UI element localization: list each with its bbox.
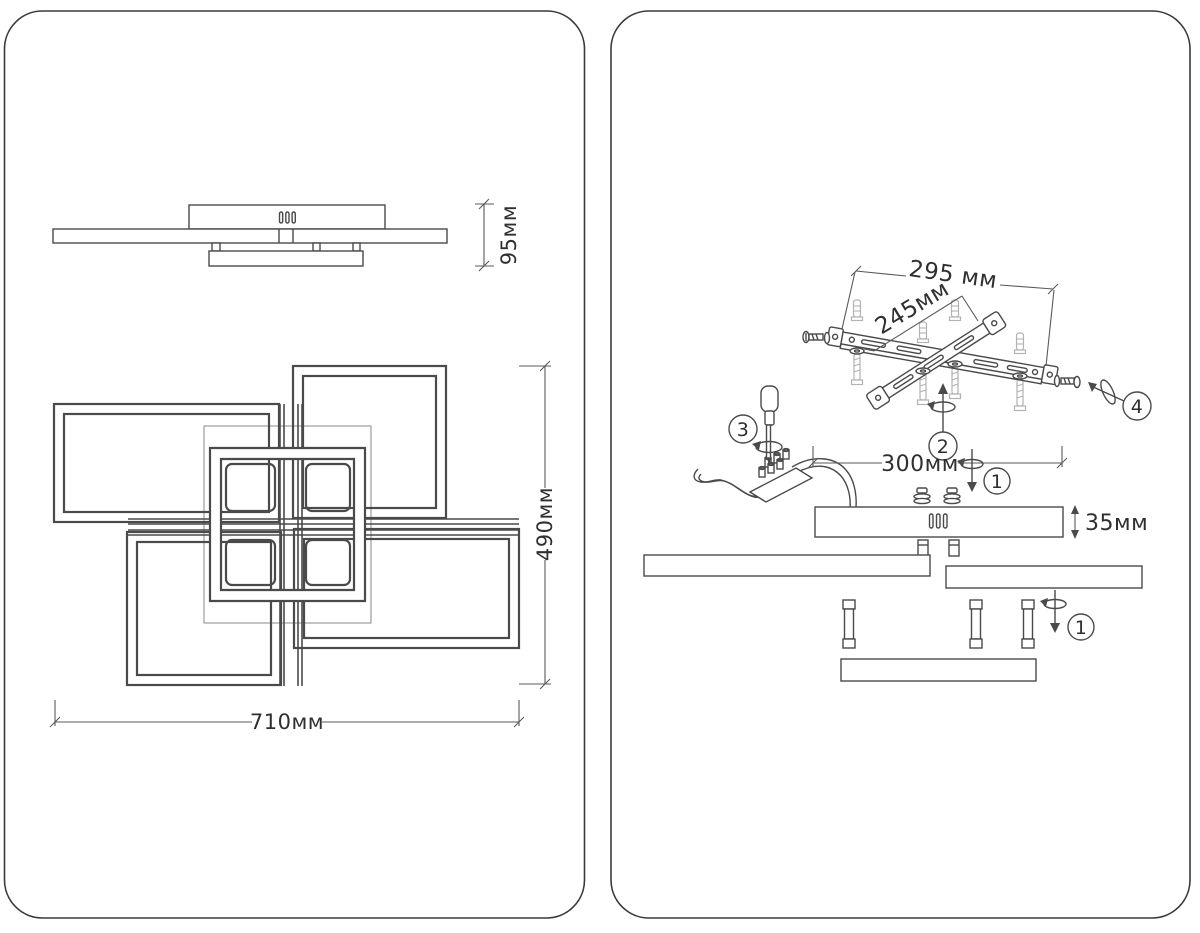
lower-frame-side — [209, 251, 363, 266]
main-arm-side — [53, 229, 447, 243]
frame-bar-left — [644, 555, 930, 576]
dim-35mm: 35мм — [1071, 505, 1148, 539]
rotation-loop-icon — [1098, 378, 1118, 406]
terminal-block — [750, 449, 812, 502]
canopy-side — [189, 205, 385, 229]
mounting-bracket — [803, 311, 1080, 410]
standoff-post — [843, 600, 855, 648]
left-panel-border — [5, 11, 585, 918]
cross-arms — [128, 404, 519, 686]
standoff-side — [353, 243, 360, 251]
side-screw-left — [803, 332, 830, 344]
screw-icon — [1015, 380, 1026, 411]
step-1-lower: 1 — [1040, 590, 1094, 640]
step-3: 3 — [694, 386, 856, 508]
assembly-diagram: 95мм — [0, 0, 1200, 933]
step-1-number-lower: 1 — [1075, 617, 1088, 639]
step-1-number: 1 — [991, 471, 1004, 493]
dim-710mm: 710мм — [50, 700, 524, 734]
dowel-icon — [1015, 333, 1026, 354]
standoff-posts — [843, 600, 1034, 648]
frame-bar-right — [946, 566, 1142, 588]
canopy-connectors — [918, 540, 959, 556]
canopy-screws — [914, 488, 960, 504]
step-4: 4 — [1088, 378, 1151, 420]
dim-710mm-label: 710мм — [250, 710, 324, 734]
standoff-side — [212, 243, 220, 251]
screw-icon — [950, 368, 961, 399]
canopy-screw-icon — [914, 488, 930, 504]
canopy — [815, 507, 1063, 537]
standoff-side — [313, 243, 320, 251]
dim-245mm-label: 245мм — [871, 276, 954, 340]
dim-95mm: 95мм — [475, 199, 521, 271]
fixture-plan-view — [54, 366, 519, 686]
side-screw-right — [1055, 376, 1081, 388]
dim-95mm-label: 95мм — [497, 205, 521, 265]
standoff-post — [1022, 600, 1034, 648]
step-4-number: 4 — [1131, 396, 1144, 418]
dim-300mm-label: 300мм — [881, 452, 959, 477]
frame-bars — [644, 555, 1142, 681]
step-3-number: 3 — [737, 419, 750, 441]
dim-490mm: 490мм — [519, 361, 557, 689]
fixture-side-view — [53, 205, 447, 266]
connector — [949, 540, 959, 556]
instruction-sheet: 95мм — [0, 0, 1200, 933]
standoff-post — [970, 600, 982, 648]
frame-bar-bottom — [841, 659, 1036, 681]
dim-35mm-label: 35мм — [1085, 511, 1148, 536]
led-frame-top-right — [293, 366, 446, 518]
led-frame-bottom-right — [294, 529, 519, 648]
dim-490mm-label: 490мм — [533, 487, 557, 561]
step-1-upper: 1 — [957, 449, 1010, 494]
dowel-icon — [852, 300, 863, 321]
canopy-screw-icon — [944, 488, 960, 504]
screw-icon — [852, 354, 863, 385]
connector — [918, 540, 928, 556]
screw-direction-arrow-icon — [1091, 386, 1124, 401]
dowel-icon — [918, 322, 929, 343]
